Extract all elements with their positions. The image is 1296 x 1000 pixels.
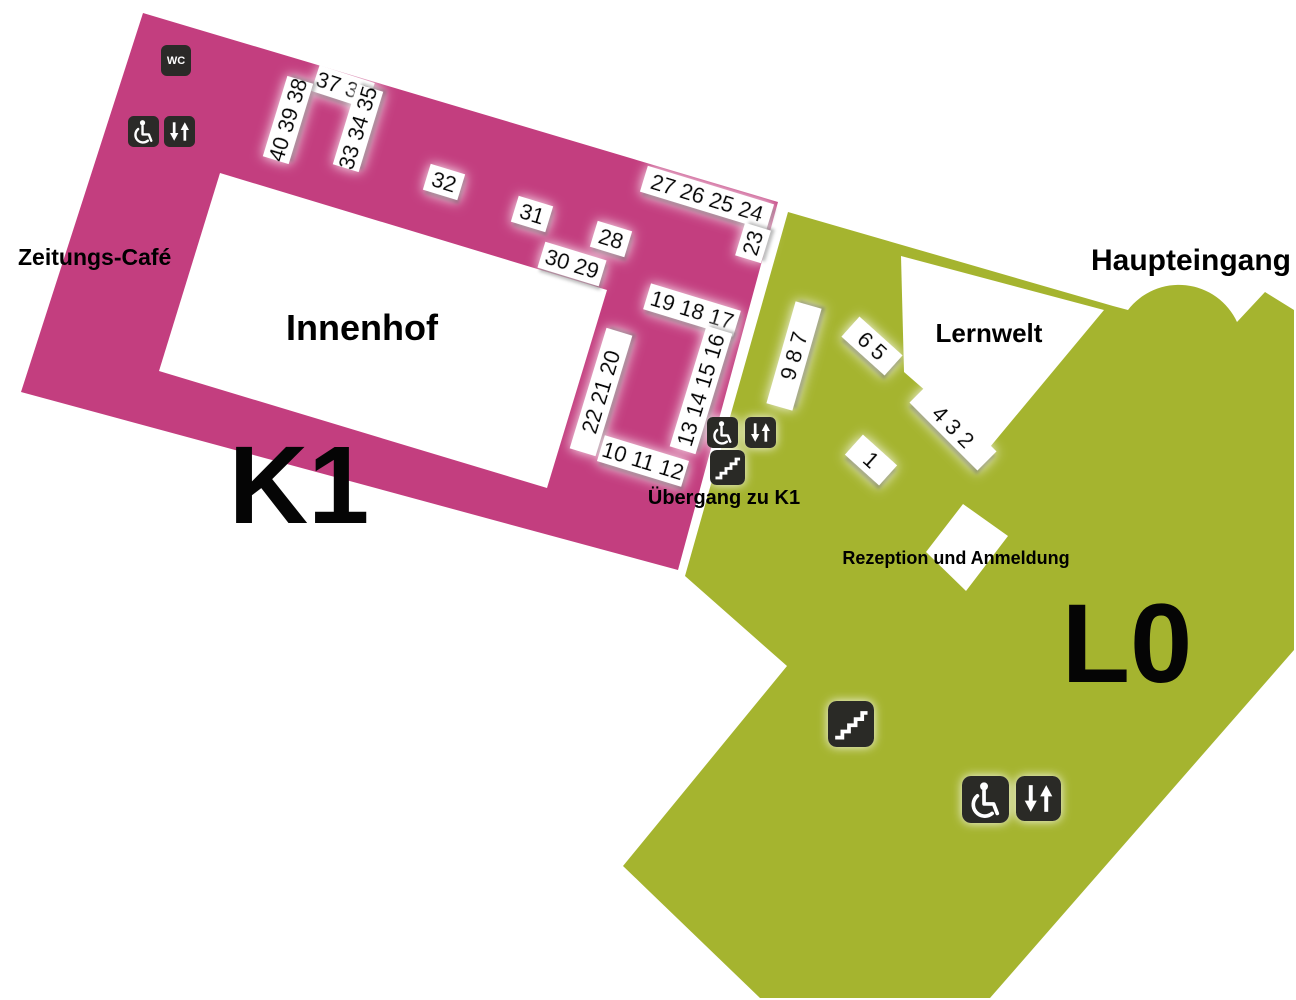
stairs-icon [710,450,745,485]
wc-icon: WC [161,45,191,76]
wheelchair-icon [128,116,159,147]
wc-icon-label: WC [167,55,185,67]
k1-floor-title: K1 [229,424,370,547]
innenhof-label: Innenhof [286,307,439,348]
wheelchair-icon [707,417,738,448]
floor-plan-page: 37 36 40 39 38 33 34 35 32 31 28 30 29 [0,0,1296,1000]
lernwelt-label: Lernwelt [936,318,1043,348]
wheelchair-icon [962,776,1009,823]
l0-floor-title: L0 [1062,581,1193,706]
haupteingang-label: Haupteingang [1091,244,1291,277]
elevator-icon [745,417,776,448]
zeitungs-cafe-label: Zeitungs-Café [18,244,171,270]
uebergang-zu-k1-label: Übergang zu K1 [648,486,800,509]
stairs-icon [828,701,874,747]
floor-plan-map: 37 36 40 39 38 33 34 35 32 31 28 30 29 [0,0,1296,1000]
elevator-icon [164,116,195,147]
elevator-icon [1016,776,1061,821]
rezeption-label: Rezeption und Anmeldung [842,548,1069,568]
